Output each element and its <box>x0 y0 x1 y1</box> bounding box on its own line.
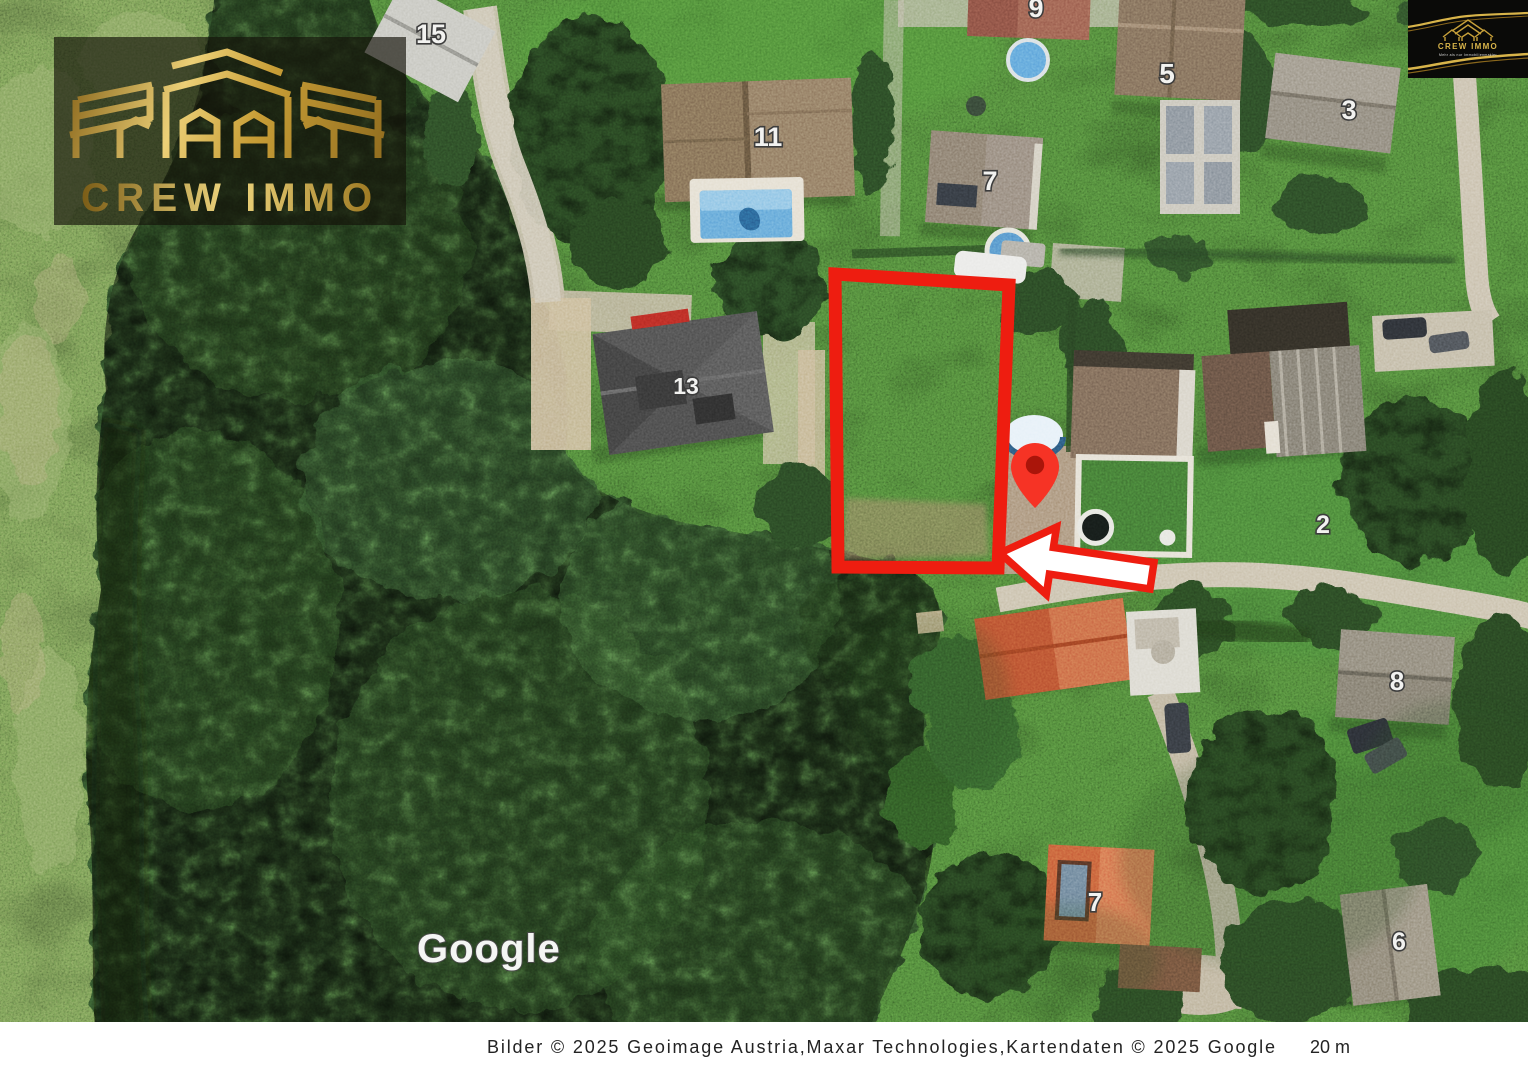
svg-text:11: 11 <box>754 122 783 152</box>
svg-text:Mehr als nur Immobilienmakler: Mehr als nur Immobilienmakler <box>1439 53 1497 57</box>
svg-text:Bilder © 2025 Geoimage Austria: Bilder © 2025 Geoimage Austria,Maxar Tec… <box>487 1037 1275 1057</box>
svg-text:CREW IMMO: CREW IMMO <box>81 176 379 220</box>
svg-text:13: 13 <box>673 373 699 399</box>
svg-text:9: 9 <box>1028 0 1043 23</box>
svg-text:Google: Google <box>417 927 561 971</box>
svg-text:3: 3 <box>1341 95 1356 125</box>
svg-text:20 m: 20 m <box>1310 1037 1350 1057</box>
svg-text:8: 8 <box>1390 666 1404 696</box>
svg-text:7: 7 <box>1088 887 1102 917</box>
svg-text:15: 15 <box>416 19 446 49</box>
svg-text:2: 2 <box>1316 511 1330 539</box>
svg-text:CREW IMMO: CREW IMMO <box>1438 42 1498 51</box>
svg-text:6: 6 <box>1392 928 1406 956</box>
svg-text:7: 7 <box>982 166 997 196</box>
svg-text:5: 5 <box>1159 58 1175 89</box>
